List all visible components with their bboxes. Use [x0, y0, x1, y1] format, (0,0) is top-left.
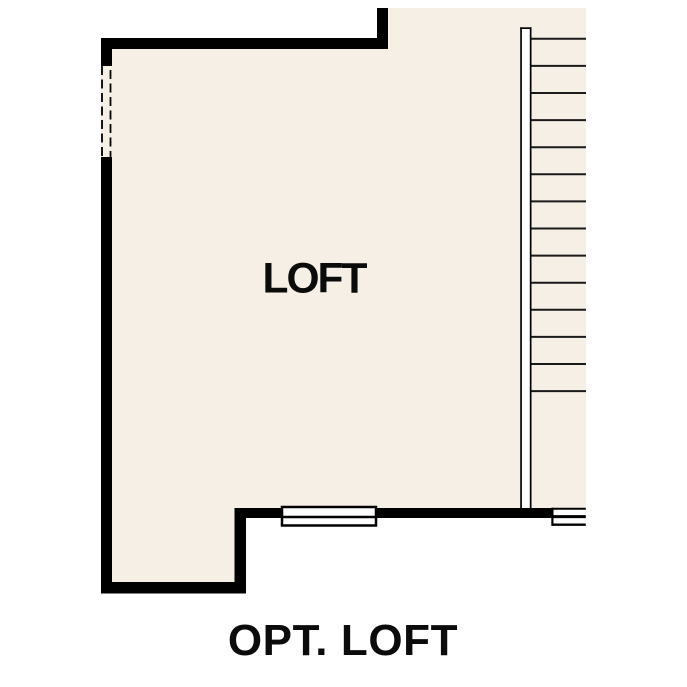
svg-text:LOFT: LOFT: [263, 256, 368, 303]
svg-text:OPT. LOFT: OPT. LOFT: [228, 616, 458, 665]
